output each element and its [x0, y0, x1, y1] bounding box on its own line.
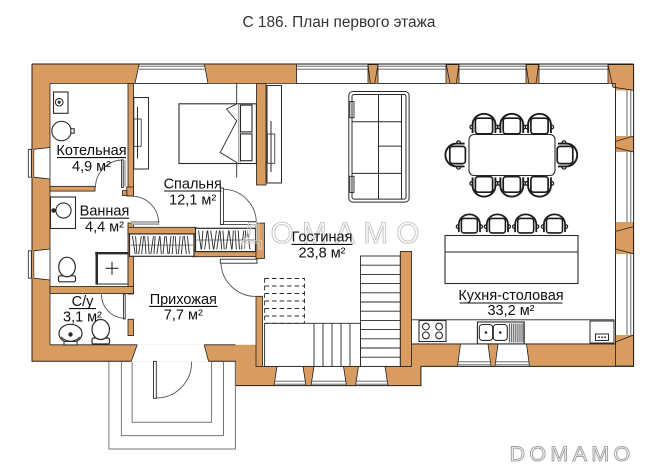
svg-text:Ванная: Ванная [80, 204, 130, 220]
svg-text:С/у: С/у [72, 294, 95, 310]
svg-text:Спальня: Спальня [164, 177, 222, 193]
svg-text:3,1 м²: 3,1 м² [63, 310, 102, 326]
svg-text:DOMAMO: DOMAMO [510, 442, 635, 466]
svg-text:С 186. План первого этажа: С 186. План первого этажа [243, 14, 436, 31]
svg-text:4,9 м²: 4,9 м² [72, 159, 111, 175]
svg-text:12,1 м²: 12,1 м² [169, 193, 216, 209]
svg-text:Прихожая: Прихожая [150, 292, 217, 308]
svg-text:33,2 м²: 33,2 м² [487, 303, 534, 319]
svg-text:23,8 м²: 23,8 м² [298, 246, 345, 262]
svg-text:7,7 м²: 7,7 м² [164, 308, 203, 324]
svg-text:4,4 м²: 4,4 м² [85, 220, 124, 236]
svg-text:Гостиная: Гостиная [292, 230, 353, 246]
svg-text:Котельная: Котельная [56, 143, 126, 159]
svg-text:Кухня-столовая: Кухня-столовая [458, 288, 563, 304]
